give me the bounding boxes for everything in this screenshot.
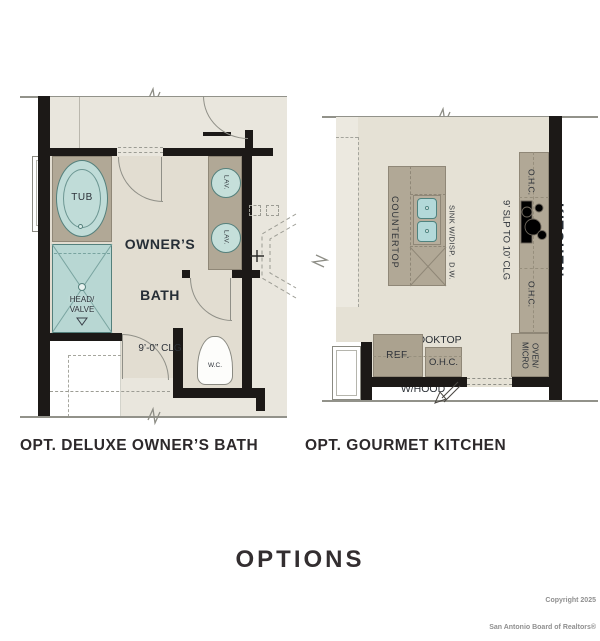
sink-label: SINK W/DISP. D.W. (447, 199, 455, 285)
oven-micro-label: OVEN/ MICRO (521, 342, 540, 369)
area-boundary-dashed-line (358, 137, 359, 307)
ohc-label: O.H.C. (526, 270, 536, 318)
oven-micro-cabinet: OVEN/ MICRO (511, 333, 549, 377)
countertop-label: COUNTERTOP (390, 196, 400, 260)
leader-arrow-icon (432, 380, 460, 404)
interior-wall (512, 377, 549, 387)
counter-dashed-line (373, 356, 462, 357)
copyright-notice: Copyright 2025 San Antonio Board of Real… (489, 578, 596, 641)
sink-drain (425, 206, 429, 210)
plan-edge-line (322, 400, 598, 402)
options-title: OPTIONS (0, 547, 600, 574)
dishwasher-x-lines (410, 247, 446, 286)
cabinet-section-dashed-line (519, 268, 549, 269)
break-mark-icon (311, 253, 329, 269)
interior-wall (361, 342, 372, 400)
cased-opening-dashes (467, 384, 512, 385)
ohc-cabinet: O.H.C. (425, 347, 462, 377)
oven-label-line: MICRO (521, 342, 530, 369)
kitchen-floorplan: COUNTERTOP SINK W/DISP. D.W. KITCHEN 9’ … (0, 0, 600, 600)
adjacent-floor (336, 117, 358, 307)
ohc-label: O.H.C. (429, 357, 458, 368)
copyright-line: San Antonio Board of Realtors® (489, 623, 596, 632)
cased-opening-dashes (467, 378, 512, 379)
plan-caption-kitchen: OPT. GOURMET KITCHEN (305, 437, 485, 454)
area-boundary-dashed-line (336, 137, 358, 138)
exterior-wall (549, 116, 562, 400)
plan-caption-bath: OPT. DELUXE OWNER’S BATH (20, 437, 250, 454)
ceiling-height-label: 9’ SLP TO 10’ CLG (500, 188, 511, 292)
entry-door-inner-line (336, 350, 357, 396)
oven-label-line: OVEN/ (531, 342, 540, 369)
copyright-line: Copyright 2025 (489, 596, 596, 605)
cooktop-burners-icon (519, 198, 549, 246)
sink-drain (425, 229, 429, 233)
